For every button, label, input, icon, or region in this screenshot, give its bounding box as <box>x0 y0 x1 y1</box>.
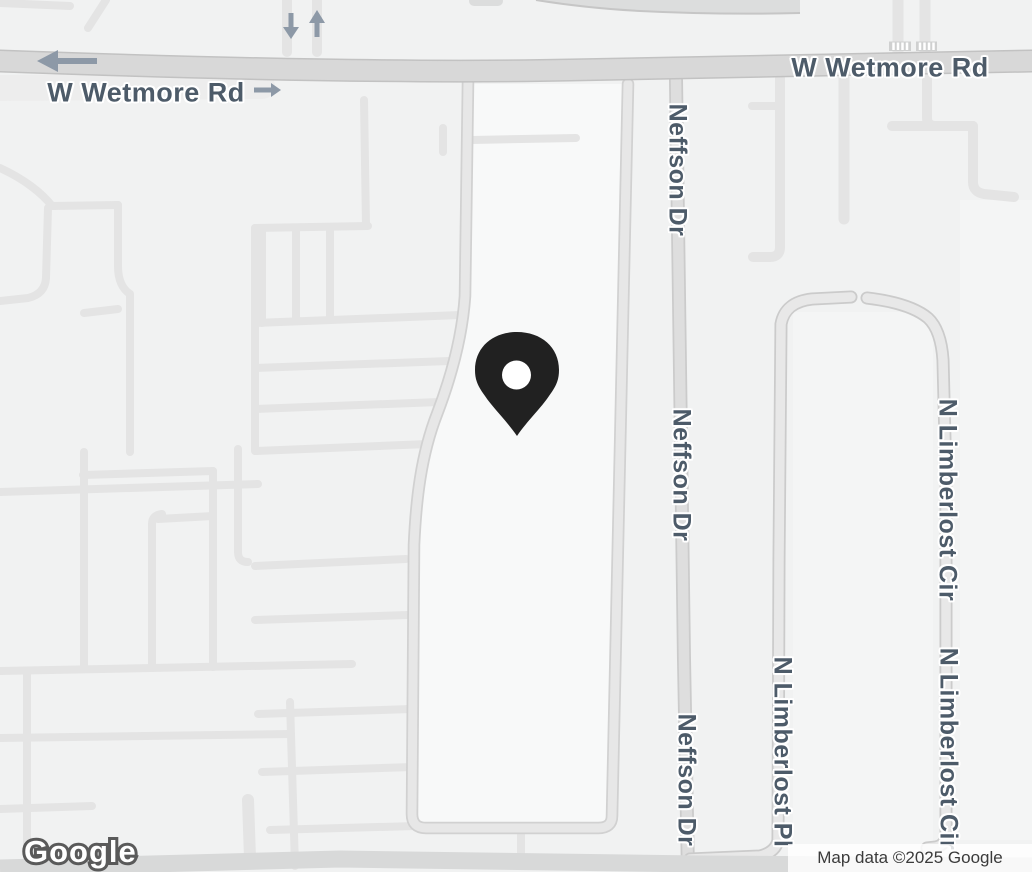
road-top-arc <box>474 0 800 14</box>
map-viewport[interactable]: W Wetmore Rd W Wetmore Rd Neffson Dr Nef… <box>0 0 1032 872</box>
road-label-neffson-3: Neffson Dr <box>672 714 701 847</box>
road-label-limberlost-cir-1: N Limberlost Cir <box>933 399 962 601</box>
map-canvas[interactable] <box>0 0 1032 872</box>
google-logo-text: Google <box>24 834 137 869</box>
road-label-limberlost-cir-2: N Limberlost Cir <box>934 648 963 850</box>
crosswalk-stripes <box>889 42 937 52</box>
road-label-wetmore-1: W Wetmore Rd <box>47 78 245 109</box>
google-logo[interactable]: Google <box>16 826 186 872</box>
road-label-neffson-1: Neffson Dr <box>663 104 692 237</box>
road-label-neffson-2: Neffson Dr <box>667 409 696 542</box>
road-label-limberlost-pl: N Limberlost Pl <box>768 657 797 848</box>
map-attribution: Map data ©2025 Google <box>788 844 1032 872</box>
one-way-up-arrow-icon <box>309 10 325 37</box>
road-label-wetmore-2: W Wetmore Rd <box>791 53 989 84</box>
